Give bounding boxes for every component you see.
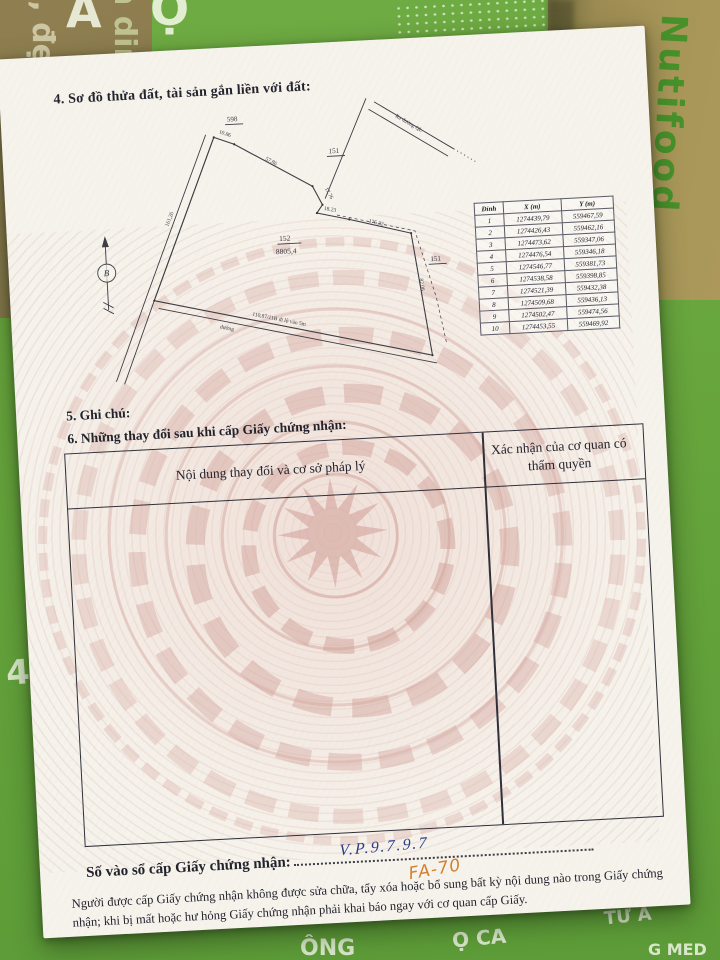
box-lid-letter-1: A	[66, 0, 102, 38]
section5-heading: 5. Ghi chú:	[66, 405, 131, 424]
neighbor-parcel-top: 151	[328, 147, 339, 156]
changes-col2-header: Xác nhận của cơ quan có thẩm quyền	[473, 424, 645, 487]
vertex-coordinates-table: Đỉnh X (m) Y (m) 11274439,79559467,59 21…	[474, 196, 621, 336]
changes-table-divider	[482, 433, 504, 825]
parcel-area-label: 8805,4	[276, 246, 297, 256]
edge-length-label: 17.76	[323, 187, 334, 201]
changes-table: Nội dung thay đổi và cơ sở pháp lý Xác n…	[64, 423, 664, 847]
box-bottom-text-1: ÔNG	[300, 936, 355, 960]
changes-col1-header: Nội dung thay đổi và cơ sở pháp lý	[65, 433, 476, 508]
box-bottom-text-2: Ọ CA	[451, 924, 507, 953]
parcel-number-label: 152	[279, 233, 291, 243]
edge-length-label: 176.32	[368, 218, 384, 227]
parcel-sketch: B 598 151 151 152 8805,4 10.86 57.86 17.…	[36, 90, 501, 413]
certificate-page: 4. Sơ đồ thửa đất, tài sản gắn liền với …	[0, 26, 691, 939]
photo-stage: l, đẹp da n dinh A Ọ Nutifood 4X ÔNG Ọ C…	[0, 0, 720, 960]
edge-length-label: 18.23	[323, 206, 337, 214]
edge-length-label: 161,26	[165, 211, 176, 227]
neighbor-parcel-right: 151	[430, 255, 441, 264]
neighbor-parcel-topleft: 598	[227, 115, 238, 124]
box-lid-letter-2: Ọ	[150, 0, 189, 36]
compass-north-label: B	[103, 268, 110, 278]
edge-length-label: 10.86	[218, 129, 232, 139]
edge-length-label: 82.06	[417, 278, 425, 291]
road-right-label: Ra đường QL	[394, 113, 424, 134]
road-bottom-name: đường	[219, 324, 234, 333]
registry-number-label: Số vào sổ cấp Giấy chứng nhận:	[86, 854, 291, 881]
box-bottom-text-4: G MED	[648, 940, 707, 959]
edge-length-label: 57.86	[264, 156, 278, 167]
